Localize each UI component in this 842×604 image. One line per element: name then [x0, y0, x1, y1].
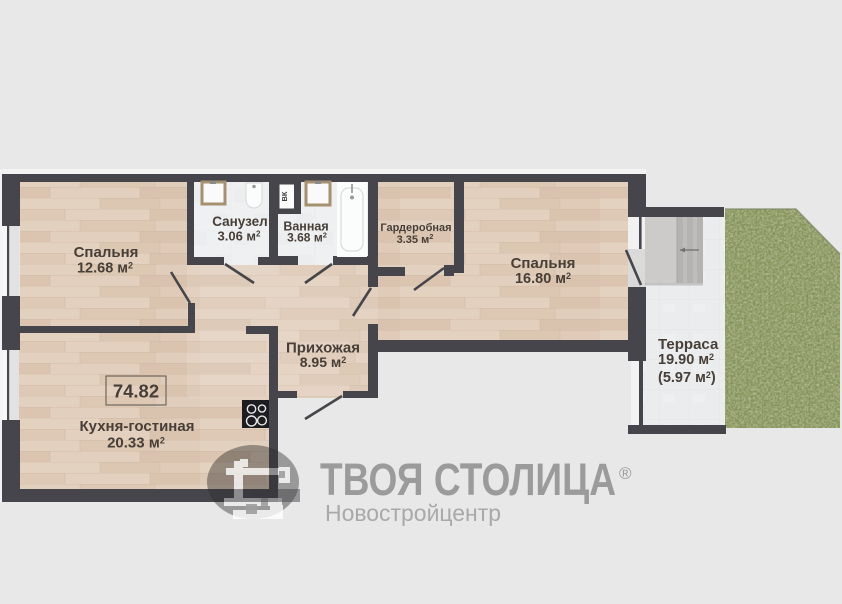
svg-text:8.95 м2: 8.95 м2 — [300, 354, 347, 370]
svg-text:®: ® — [619, 464, 632, 483]
svg-text:Кухня-гостиная: Кухня-гостиная — [80, 418, 195, 435]
svg-text:19.90 м2: 19.90 м2 — [658, 352, 714, 368]
svg-text:Новостройцентр: Новостройцентр — [325, 500, 501, 526]
svg-text:Спальня: Спальня — [74, 244, 139, 261]
svg-text:Гардеробная: Гардеробная — [380, 222, 451, 234]
svg-text:3.68 м2: 3.68 м2 — [287, 231, 327, 245]
svg-text:16.80 м2: 16.80 м2 — [515, 271, 571, 287]
svg-text:Терраса: Терраса — [658, 336, 719, 353]
svg-text:3.35 м2: 3.35 м2 — [397, 232, 434, 246]
svg-text:Санузел: Санузел — [212, 214, 268, 229]
svg-text:74.82: 74.82 — [113, 381, 159, 402]
svg-text:ТВОЯ СТОЛИЦА: ТВОЯ СТОЛИЦА — [320, 454, 616, 505]
svg-text:12.68 м2: 12.68 м2 — [77, 261, 133, 277]
svg-text:ВК: ВК — [280, 191, 289, 201]
svg-text:20.33 м2: 20.33 м2 — [107, 435, 165, 452]
svg-text:3.06 м2: 3.06 м2 — [218, 229, 262, 244]
svg-text:Спальня: Спальня — [511, 255, 576, 272]
